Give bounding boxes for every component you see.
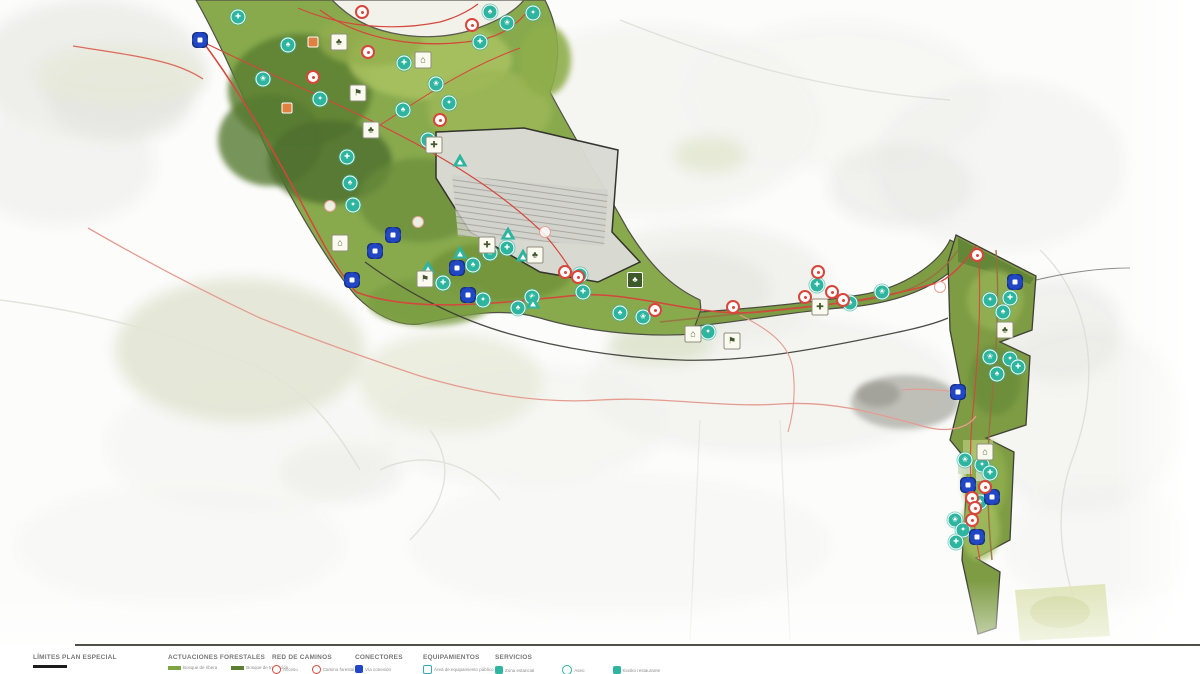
map-marker-teal[interactable]: ♣ xyxy=(613,306,628,321)
map-marker-teal[interactable]: ✚ xyxy=(1003,291,1018,306)
map-marker-teal[interactable]: ❀ xyxy=(429,77,444,92)
map-marker-square[interactable]: ✚ xyxy=(479,237,496,254)
legend-item: Vía conexión xyxy=(355,665,391,673)
legend-item: Zona estancial xyxy=(495,666,534,674)
map-marker-teal[interactable]: ❀ xyxy=(983,350,998,365)
map-marker-teal[interactable]: ✚ xyxy=(810,278,825,293)
map-marker-teal[interactable]: ♣ xyxy=(996,305,1011,320)
legend-section-caminos: RED DE CAMINOS AccesoCamino forestal xyxy=(272,654,354,674)
swatch-green-icon xyxy=(168,666,181,670)
map-marker-square[interactable]: ⌂ xyxy=(977,444,994,461)
map-marker-teal[interactable]: ♣ xyxy=(466,258,481,273)
map-marker-blue[interactable] xyxy=(451,262,464,275)
map-marker-red[interactable] xyxy=(465,18,479,32)
map-marker-square[interactable]: ⌂ xyxy=(415,52,432,69)
map-marker-red[interactable] xyxy=(970,248,984,262)
legend-title: ACTUACIONES FORESTALES xyxy=(168,654,288,661)
map-marker-teal[interactable]: ✚ xyxy=(576,285,591,300)
legend-section-limites: LÍMITES PLAN ESPECIAL xyxy=(33,654,117,668)
red-circle-icon xyxy=(272,665,281,674)
outline-square-icon xyxy=(423,665,432,674)
legend-title: LÍMITES PLAN ESPECIAL xyxy=(33,654,117,661)
map-marker-teal[interactable]: ♣ xyxy=(396,103,411,118)
map-marker-teal[interactable]: ✦ xyxy=(442,96,457,111)
map-marker-darksquare[interactable]: ♣ xyxy=(627,272,643,288)
legend-item: Acceso xyxy=(272,665,298,674)
map-marker-teal[interactable]: ❀ xyxy=(500,16,515,31)
legend-title: CONECTORES xyxy=(355,654,403,661)
map-marker-teal[interactable]: ✦ xyxy=(346,198,361,213)
map-marker-red[interactable] xyxy=(965,513,979,527)
legend-item: Aseo xyxy=(562,665,584,674)
red-circle-icon xyxy=(312,665,321,674)
map-marker-teal[interactable]: ♣ xyxy=(511,301,526,316)
map-marker-blue[interactable] xyxy=(387,229,400,242)
map-marker-teal[interactable]: ✚ xyxy=(436,276,451,291)
map-marker-teal[interactable]: ✚ xyxy=(983,466,998,481)
map-marker-teal[interactable]: ❀ xyxy=(256,72,271,87)
legend-bar: LÍMITES PLAN ESPECIAL ACTUACIONES FOREST… xyxy=(0,646,1200,674)
teal-square-icon xyxy=(495,666,503,674)
map-marker-teal[interactable]: ✦ xyxy=(701,325,716,340)
map-marker-teal[interactable]: ✚ xyxy=(500,241,515,256)
map-marker-red[interactable] xyxy=(433,113,447,127)
map-marker-teal[interactable]: ♣ xyxy=(483,5,498,20)
teal-circle-icon xyxy=(562,665,572,674)
map-marker-teal[interactable]: ♣ xyxy=(990,367,1005,382)
map-marker-teal[interactable]: ✚ xyxy=(340,150,355,165)
map-marker-square[interactable]: ✚ xyxy=(812,299,829,316)
map-marker-square[interactable]: ⚑ xyxy=(417,271,434,288)
map-marker-red[interactable] xyxy=(726,300,740,314)
map-marker-blue[interactable] xyxy=(971,531,984,544)
plan-sheet: ✚♣❀✦✚♣❀✦✚♣❀✦✚♣❀✦✚♣❀✦✚♣❀✦✚♣❀✦✚♣❀✦✚♣❀✦✚♣❀✦… xyxy=(0,0,1200,674)
map-marker-salmon[interactable] xyxy=(934,281,946,293)
map-marker-teal[interactable]: ✚ xyxy=(397,56,412,71)
legend-section-actuaciones: ACTUACIONES FORESTALES Bosque de riberaB… xyxy=(168,654,288,670)
map-marker-square[interactable]: ⚑ xyxy=(724,333,741,350)
teal-square-icon xyxy=(613,666,621,674)
map-marker-blue[interactable] xyxy=(194,34,207,47)
map-marker-square[interactable]: ✚ xyxy=(426,137,443,154)
map-marker-red[interactable] xyxy=(558,265,572,279)
map-marker-salmon[interactable] xyxy=(539,226,551,238)
map-marker-red[interactable] xyxy=(648,303,662,317)
legend-title: EQUIPAMIENTOS xyxy=(423,654,494,661)
legend-title: SERVICIOS xyxy=(495,654,660,661)
map-marker-square[interactable]: ⌂ xyxy=(685,326,702,343)
map-marker-red[interactable] xyxy=(355,5,369,19)
map-marker-blue[interactable] xyxy=(346,274,359,287)
map-marker-blue[interactable] xyxy=(369,245,382,258)
map-marker-teal[interactable]: ✦ xyxy=(476,293,491,308)
map-marker-teal[interactable]: ♣ xyxy=(281,38,296,53)
map-marker-tealtri[interactable] xyxy=(453,246,468,259)
legend-title: RED DE CAMINOS xyxy=(272,654,354,661)
map-marker-tealtri[interactable] xyxy=(501,227,516,240)
blue-burst-icon xyxy=(355,665,363,673)
swatch-olive-icon xyxy=(231,666,244,670)
map-marker-square[interactable]: ♣ xyxy=(331,34,348,51)
map-marker-salmon[interactable] xyxy=(412,216,424,228)
map-marker-red[interactable] xyxy=(978,480,992,494)
legend-section-servicios: SERVICIOS Zona estancialAseoKiosko resta… xyxy=(495,654,660,674)
map-marker-salmon[interactable] xyxy=(324,200,336,212)
map-marker-teal[interactable]: ✚ xyxy=(1011,360,1026,375)
map-marker-blue[interactable] xyxy=(462,289,475,302)
map-marker-square[interactable]: ♣ xyxy=(527,247,544,264)
map-marker-red[interactable] xyxy=(798,290,812,304)
legend-item: Kiosko restaurante xyxy=(613,666,661,674)
legend-item xyxy=(33,665,67,668)
legend-section-conectores: CONECTORES Vía conexión xyxy=(355,654,403,673)
map-marker-red[interactable] xyxy=(361,45,375,59)
legend-section-equipamientos: EQUIPAMIENTOS Área de equipamiento públi… xyxy=(423,654,494,674)
map-marker-teal[interactable]: ✚ xyxy=(473,35,488,50)
map-marker-red[interactable] xyxy=(811,265,825,279)
map-marker-blue[interactable] xyxy=(962,479,975,492)
legend-item: Bosque de ribera xyxy=(168,665,217,670)
map-marker-orange[interactable] xyxy=(282,103,293,114)
map-marker-orange[interactable] xyxy=(308,37,319,48)
map-marker-teal[interactable]: ❀ xyxy=(958,453,973,468)
map-marker-blue[interactable] xyxy=(1009,276,1022,289)
map-marker-square[interactable]: ⌂ xyxy=(332,235,349,252)
map-marker-teal[interactable]: ✦ xyxy=(313,92,328,107)
map-marker-blue[interactable] xyxy=(952,386,965,399)
map-marker-teal[interactable]: ✚ xyxy=(949,535,964,550)
map-marker-teal[interactable]: ✦ xyxy=(983,293,998,308)
map-marker-square[interactable]: ♣ xyxy=(363,122,380,139)
map-marker-teal[interactable]: ❀ xyxy=(875,285,890,300)
map-canvas[interactable]: ✚♣❀✦✚♣❀✦✚♣❀✦✚♣❀✦✚♣❀✦✚♣❀✦✚♣❀✦✚♣❀✦✚♣❀✦✚♣❀✦… xyxy=(0,0,1200,646)
map-marker-tealtri[interactable] xyxy=(453,154,468,167)
map-marker-red[interactable] xyxy=(306,70,320,84)
map-marker-red[interactable] xyxy=(836,293,850,307)
legend-item: Área de equipamiento público xyxy=(423,665,494,674)
black-line-icon xyxy=(33,665,67,668)
legend-item: Camino forestal xyxy=(312,665,355,674)
map-marker-teal[interactable]: ✚ xyxy=(231,10,246,25)
map-marker-teal[interactable]: ♣ xyxy=(343,176,358,191)
map-marker-square[interactable]: ♣ xyxy=(997,322,1014,339)
map-marker-red[interactable] xyxy=(571,270,585,284)
marker-layer: ✚♣❀✦✚♣❀✦✚♣❀✦✚♣❀✦✚♣❀✦✚♣❀✦✚♣❀✦✚♣❀✦✚♣❀✦✚♣❀✦… xyxy=(0,0,1200,646)
map-marker-square[interactable]: ⚑ xyxy=(350,85,367,102)
map-marker-teal[interactable]: ✦ xyxy=(526,6,541,21)
